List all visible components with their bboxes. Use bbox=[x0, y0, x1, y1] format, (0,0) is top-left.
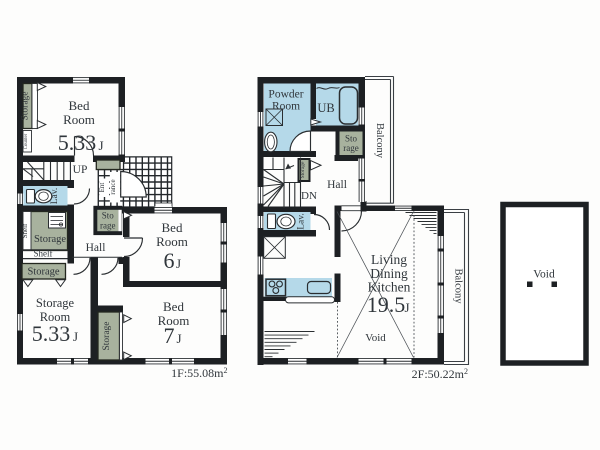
svg-text:7: 7 bbox=[164, 323, 175, 348]
svg-text:Lav.: Lav. bbox=[297, 213, 307, 230]
svg-text:rage: rage bbox=[343, 143, 359, 153]
svg-text:Storage: Storage bbox=[21, 91, 31, 120]
svg-text:Sto: Sto bbox=[345, 134, 358, 144]
svg-text:Void: Void bbox=[365, 332, 386, 344]
svg-text:J: J bbox=[405, 300, 410, 315]
svg-text:19.5: 19.5 bbox=[367, 292, 406, 317]
svg-text:rage: rage bbox=[100, 221, 116, 231]
svg-text:Shelf: Shelf bbox=[34, 249, 53, 259]
svg-text:Room: Room bbox=[272, 101, 300, 113]
svg-text:Balcony: Balcony bbox=[374, 123, 385, 159]
svg-text:DN: DN bbox=[301, 190, 317, 202]
svg-text:Void: Void bbox=[533, 269, 555, 281]
svg-text:J: J bbox=[99, 138, 104, 153]
svg-text:1F:55.08m2: 1F:55.08m2 bbox=[171, 366, 227, 380]
svg-text:Room: Room bbox=[63, 112, 95, 127]
svg-text:Hall: Hall bbox=[86, 242, 106, 254]
svg-text:UB: UB bbox=[317, 101, 334, 115]
svg-text:5.33: 5.33 bbox=[58, 130, 97, 155]
svg-text:Room: Room bbox=[156, 234, 188, 249]
svg-text:Balcony: Balcony bbox=[453, 269, 464, 305]
svg-text:UP: UP bbox=[73, 164, 88, 176]
svg-text:Bed: Bed bbox=[163, 299, 184, 314]
svg-text:Storage: Storage bbox=[34, 234, 66, 245]
svg-text:Lav.: Lav. bbox=[50, 188, 60, 205]
svg-text:Powder: Powder bbox=[268, 89, 303, 101]
svg-text:Storage: Storage bbox=[36, 296, 75, 310]
svg-text:J: J bbox=[176, 256, 181, 271]
svg-text:Ent: Ent bbox=[98, 183, 106, 193]
svg-text:Living: Living bbox=[371, 252, 407, 267]
svg-text:Storage: Storage bbox=[102, 321, 112, 350]
svg-text:Storage: Storage bbox=[300, 161, 306, 178]
svg-text:Shelf: Shelf bbox=[21, 223, 29, 238]
svg-text:Counter: Counter bbox=[24, 133, 29, 149]
svg-text:rance: rance bbox=[109, 179, 117, 194]
svg-text:J: J bbox=[73, 329, 78, 344]
svg-text:J: J bbox=[177, 331, 182, 346]
svg-text:Bed: Bed bbox=[69, 98, 90, 113]
svg-text:Hall: Hall bbox=[327, 179, 347, 191]
svg-text:Sto: Sto bbox=[102, 211, 115, 221]
svg-text:2F:50.22m2: 2F:50.22m2 bbox=[412, 367, 468, 381]
svg-text:6: 6 bbox=[164, 248, 175, 273]
svg-text:Storage: Storage bbox=[27, 267, 59, 278]
svg-text:5.33: 5.33 bbox=[32, 321, 71, 346]
svg-text:Bed: Bed bbox=[162, 220, 183, 235]
